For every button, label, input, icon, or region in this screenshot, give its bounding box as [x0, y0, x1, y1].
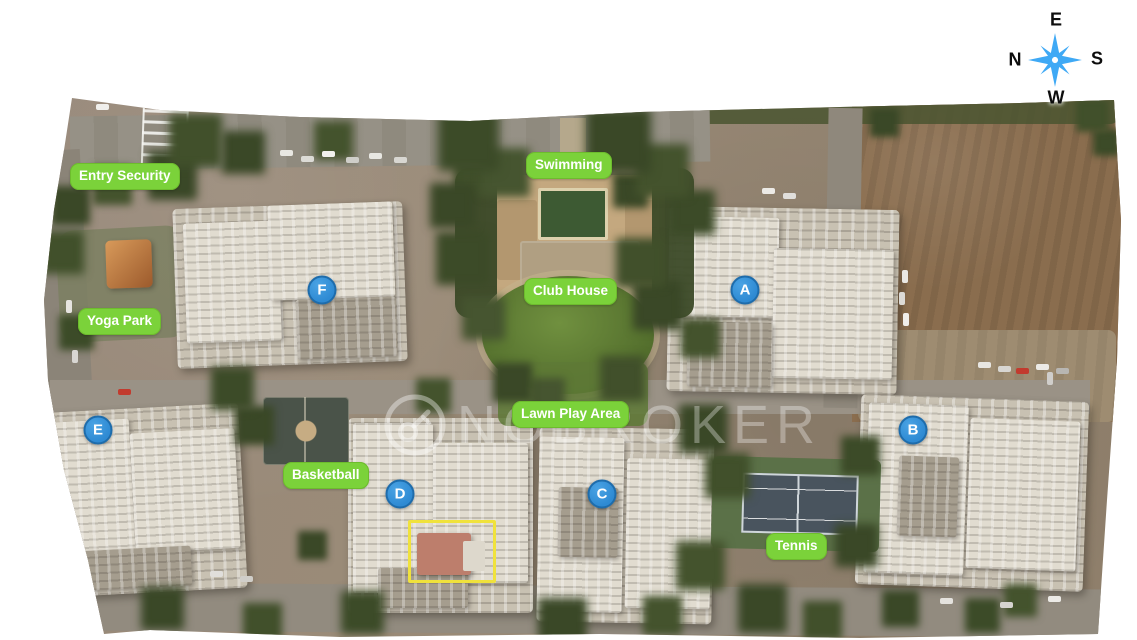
- amenity-label-tennis: Tennis: [766, 533, 827, 560]
- amenity-label-lawn-play-area: Lawn Play Area: [512, 401, 629, 428]
- screenshot-root: NOBROKER Entry SecurityYoga ParkSwimming…: [0, 0, 1137, 640]
- compass-rose: E N S W: [990, 0, 1137, 120]
- building-marker-b: B: [899, 416, 928, 445]
- building-marker-a: A: [731, 276, 760, 305]
- amenity-label-club-house: Club House: [524, 278, 617, 305]
- compass-star-icon: [1027, 32, 1083, 88]
- building-marker-c: C: [588, 480, 617, 509]
- amenity-label-yoga-park: Yoga Park: [78, 308, 161, 335]
- building-marker-d: D: [386, 480, 415, 509]
- compass-letter-bottom: W: [1048, 88, 1065, 109]
- amenity-label-swimming: Swimming: [526, 152, 612, 179]
- annotations-layer: Entry SecurityYoga ParkSwimmingClub Hous…: [0, 0, 1137, 640]
- amenity-label-basketball: Basketball: [283, 462, 369, 489]
- compass-letter-top: E: [1050, 10, 1062, 31]
- compass-letter-left: N: [1009, 50, 1022, 71]
- building-marker-f: F: [308, 276, 337, 305]
- building-marker-e: E: [84, 416, 113, 445]
- amenity-label-entry-security: Entry Security: [70, 163, 180, 190]
- compass-letter-right: S: [1091, 49, 1103, 70]
